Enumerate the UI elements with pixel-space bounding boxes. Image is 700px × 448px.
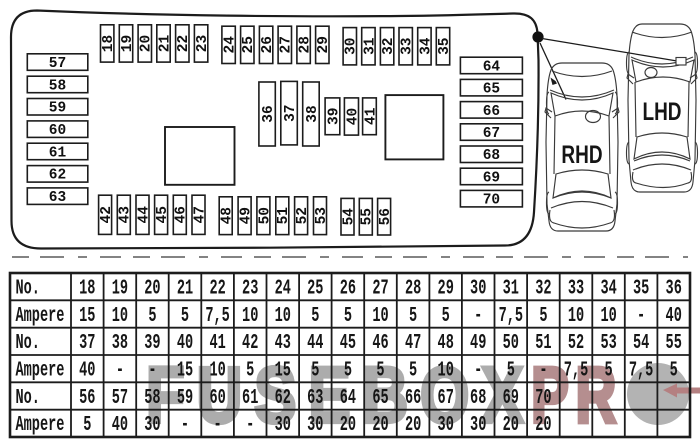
svg-text:59: 59: [177, 386, 193, 410]
svg-text:-: -: [637, 304, 645, 328]
svg-text:59: 59: [49, 101, 66, 117]
svg-text:69: 69: [503, 386, 519, 410]
svg-text:65: 65: [372, 386, 388, 410]
svg-text:30: 30: [470, 277, 486, 301]
svg-text:-: -: [474, 359, 482, 383]
svg-text:5: 5: [670, 359, 678, 383]
svg-text:23: 23: [242, 277, 258, 301]
svg-text:62: 62: [275, 386, 291, 410]
svg-text:32: 32: [381, 37, 397, 54]
svg-text:50: 50: [257, 207, 273, 224]
svg-text:-: -: [539, 359, 547, 383]
svg-text:58: 58: [144, 386, 160, 410]
svg-text:45: 45: [340, 332, 356, 356]
svg-text:5: 5: [409, 304, 417, 328]
svg-text:51: 51: [535, 332, 551, 356]
svg-text:47: 47: [192, 206, 208, 223]
svg-text:15: 15: [177, 359, 193, 383]
svg-text:-: -: [214, 414, 222, 438]
svg-text:70: 70: [535, 386, 551, 410]
svg-text:46: 46: [372, 332, 388, 356]
svg-text:34: 34: [600, 277, 617, 301]
svg-text:No.: No.: [16, 332, 40, 356]
svg-text:52: 52: [295, 207, 311, 224]
svg-text:5: 5: [376, 359, 384, 383]
svg-text:20: 20: [139, 35, 155, 52]
svg-text:28: 28: [298, 36, 314, 53]
svg-text:5: 5: [311, 359, 319, 383]
svg-text:64: 64: [483, 59, 501, 75]
svg-text:30: 30: [307, 414, 323, 438]
svg-text:40: 40: [177, 332, 193, 356]
svg-text:51: 51: [276, 207, 292, 225]
svg-text:36: 36: [666, 277, 682, 301]
svg-text:10: 10: [568, 304, 584, 328]
svg-text:10: 10: [372, 304, 388, 328]
svg-text:23: 23: [195, 35, 211, 52]
svg-text:5: 5: [539, 304, 547, 328]
svg-text:35: 35: [633, 277, 649, 301]
svg-text:27: 27: [279, 36, 295, 53]
svg-text:5: 5: [442, 304, 450, 328]
svg-text:67: 67: [438, 386, 454, 410]
svg-text:36: 36: [261, 105, 277, 122]
svg-text:15: 15: [275, 359, 291, 383]
svg-text:5: 5: [148, 304, 156, 328]
svg-text:49: 49: [239, 207, 255, 224]
svg-text:61: 61: [242, 386, 258, 410]
svg-text:62: 62: [49, 168, 66, 184]
svg-text:-: -: [116, 359, 124, 383]
svg-text:30: 30: [144, 414, 160, 438]
svg-text:57: 57: [112, 386, 128, 410]
svg-text:30: 30: [344, 37, 360, 54]
svg-text:52: 52: [568, 332, 584, 356]
svg-text:40: 40: [345, 108, 361, 125]
svg-text:19: 19: [112, 277, 128, 301]
svg-text:46: 46: [174, 206, 190, 223]
svg-text:39: 39: [326, 108, 342, 125]
svg-text:68: 68: [483, 148, 500, 164]
svg-text:21: 21: [157, 35, 173, 53]
svg-text:60: 60: [209, 386, 225, 410]
svg-text:55: 55: [360, 208, 376, 225]
svg-text:24: 24: [223, 36, 239, 54]
svg-text:5: 5: [605, 359, 613, 383]
svg-text:48: 48: [438, 332, 454, 356]
svg-text:No.: No.: [16, 386, 40, 410]
svg-text:48: 48: [220, 207, 236, 224]
svg-text:7,5: 7,5: [564, 359, 588, 383]
svg-text:47: 47: [405, 332, 421, 356]
svg-text:5: 5: [344, 304, 352, 328]
svg-text:54: 54: [341, 208, 357, 226]
svg-text:15: 15: [79, 304, 95, 328]
svg-text:28: 28: [405, 277, 421, 301]
svg-text:43: 43: [275, 332, 291, 356]
svg-text:No.: No.: [16, 277, 40, 301]
svg-text:19: 19: [120, 35, 136, 52]
svg-text:20: 20: [503, 414, 519, 438]
svg-text:-: -: [181, 414, 189, 438]
svg-text:7,5: 7,5: [205, 304, 229, 328]
svg-text:61: 61: [49, 145, 67, 161]
svg-text:37: 37: [79, 332, 95, 356]
svg-text:30: 30: [275, 414, 291, 438]
svg-text:5: 5: [409, 359, 417, 383]
svg-text:33: 33: [568, 277, 584, 301]
svg-text:40: 40: [112, 414, 128, 438]
svg-text:5: 5: [344, 359, 352, 383]
svg-text:69: 69: [483, 170, 500, 186]
svg-text:38: 38: [305, 105, 321, 122]
svg-text:25: 25: [241, 36, 257, 53]
svg-text:18: 18: [101, 35, 117, 52]
svg-text:31: 31: [503, 277, 519, 301]
svg-text:5: 5: [83, 414, 91, 438]
svg-text:53: 53: [314, 207, 330, 224]
svg-text:-: -: [474, 304, 482, 328]
svg-text:Ampere: Ampere: [16, 414, 65, 438]
svg-text:26: 26: [260, 36, 276, 53]
svg-text:10: 10: [242, 304, 258, 328]
svg-text:10: 10: [600, 304, 616, 328]
svg-text:29: 29: [438, 277, 454, 301]
svg-text:20: 20: [405, 414, 421, 438]
svg-text:63: 63: [49, 190, 66, 206]
svg-text:57: 57: [49, 56, 66, 72]
svg-text:39: 39: [144, 332, 160, 356]
svg-text:18: 18: [79, 277, 95, 301]
svg-text:21: 21: [177, 277, 193, 301]
svg-text:29: 29: [316, 36, 332, 53]
svg-text:67: 67: [483, 126, 500, 142]
svg-text:66: 66: [405, 386, 421, 410]
svg-text:50: 50: [503, 332, 519, 356]
svg-text:20: 20: [340, 414, 356, 438]
svg-text:5: 5: [311, 304, 319, 328]
svg-text:55: 55: [666, 332, 682, 356]
svg-text:56: 56: [378, 208, 394, 225]
svg-text:5: 5: [181, 304, 189, 328]
svg-text:40: 40: [79, 359, 95, 383]
svg-text:49: 49: [470, 332, 486, 356]
svg-text:26: 26: [340, 277, 356, 301]
svg-text:58: 58: [49, 78, 66, 94]
svg-text:30: 30: [438, 414, 454, 438]
svg-text:68: 68: [470, 386, 486, 410]
svg-text:41: 41: [363, 107, 379, 125]
svg-text:10: 10: [209, 359, 225, 383]
svg-text:-: -: [148, 359, 156, 383]
svg-text:LHD: LHD: [642, 97, 681, 125]
svg-text:5: 5: [507, 359, 515, 383]
svg-text:64: 64: [340, 386, 357, 410]
svg-text:24: 24: [275, 277, 292, 301]
svg-text:65: 65: [483, 82, 500, 98]
svg-text:37: 37: [283, 104, 299, 121]
svg-text:22: 22: [209, 277, 225, 301]
svg-text:20: 20: [535, 414, 551, 438]
svg-text:66: 66: [483, 104, 500, 120]
svg-text:31: 31: [362, 37, 378, 55]
svg-text:10: 10: [438, 359, 454, 383]
svg-text:33: 33: [400, 37, 416, 54]
svg-text:34: 34: [418, 37, 434, 55]
svg-text:40: 40: [666, 304, 682, 328]
svg-text:20: 20: [372, 414, 388, 438]
svg-text:5: 5: [246, 359, 254, 383]
svg-text:60: 60: [49, 123, 66, 139]
svg-text:25: 25: [307, 277, 323, 301]
svg-text:45: 45: [155, 206, 171, 223]
svg-text:30: 30: [470, 414, 486, 438]
svg-text:70: 70: [483, 193, 500, 209]
svg-text:35: 35: [437, 37, 453, 54]
svg-text:Ampere: Ampere: [16, 359, 65, 383]
svg-text:42: 42: [99, 206, 115, 223]
svg-text:53: 53: [600, 332, 616, 356]
svg-text:41: 41: [209, 332, 225, 356]
svg-text:RHD: RHD: [561, 140, 602, 168]
svg-text:63: 63: [307, 386, 323, 410]
svg-text:20: 20: [144, 277, 160, 301]
svg-text:-: -: [246, 414, 254, 438]
svg-text:22: 22: [176, 35, 192, 52]
svg-text:Ampere: Ampere: [16, 304, 65, 328]
svg-text:38: 38: [112, 332, 128, 356]
svg-text:7,5: 7,5: [499, 304, 523, 328]
svg-text:10: 10: [275, 304, 291, 328]
svg-text:32: 32: [535, 277, 551, 301]
svg-text:10: 10: [112, 304, 128, 328]
svg-text:27: 27: [372, 277, 388, 301]
svg-text:42: 42: [242, 332, 258, 356]
svg-text:54: 54: [633, 332, 650, 356]
svg-text:43: 43: [118, 206, 134, 223]
svg-text:56: 56: [79, 386, 95, 410]
svg-text:44: 44: [136, 206, 152, 224]
svg-text:7,5: 7,5: [629, 359, 653, 383]
svg-text:44: 44: [307, 332, 324, 356]
